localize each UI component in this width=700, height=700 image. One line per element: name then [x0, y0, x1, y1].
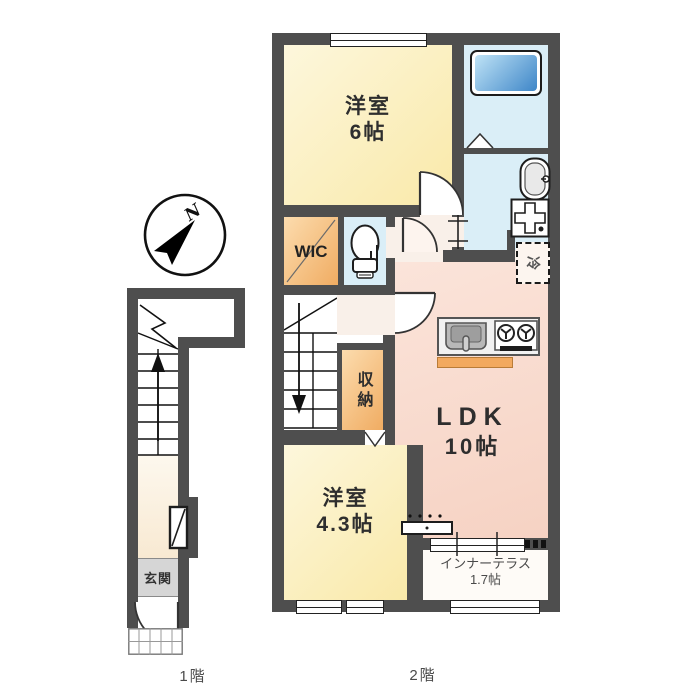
folding-door-icon	[464, 131, 496, 150]
room43-size: 4.3帖	[316, 512, 374, 538]
ldk-size: 10帖	[445, 433, 500, 461]
window-terrace-bottom	[450, 600, 540, 614]
ldk-label: LDK 10帖	[400, 395, 545, 467]
wall-1f-top	[127, 288, 245, 299]
door-arc-room6	[395, 168, 463, 217]
room43-door-notch	[363, 431, 387, 448]
wall-wic-toilet-divider	[338, 217, 344, 285]
wall-1f-column-right	[178, 337, 189, 628]
kitchen-sink-icon	[442, 320, 490, 354]
room43-name: 洋室	[323, 486, 369, 512]
louver-vent-icon	[524, 539, 548, 549]
porch-tiles	[128, 628, 183, 655]
wall-toilet-right-bottom	[386, 258, 395, 295]
room43-label: 洋室 4.3帖	[284, 480, 407, 544]
stairs-down-icon	[284, 295, 337, 430]
door-arc-toilet	[396, 214, 442, 256]
wall-washroom-bottom	[443, 250, 515, 262]
room6-size: 6帖	[350, 120, 387, 146]
stove-icon	[494, 320, 538, 354]
window-room6-top	[330, 33, 427, 47]
floor1-caption: 1階	[153, 665, 233, 686]
wall-room43-top-a	[284, 430, 365, 445]
shoe-cabinet-icon	[168, 505, 189, 550]
closet-text: 収納	[351, 371, 375, 411]
window-room43-bottom-1	[296, 600, 342, 614]
wall-2f-left	[272, 33, 284, 612]
washroom-sliding-door	[444, 211, 472, 251]
entrance-floor: 玄関	[138, 558, 178, 597]
ldk-name: LDK	[436, 402, 508, 433]
closet-label: 収納	[342, 355, 383, 427]
toilet-icon	[349, 223, 383, 281]
washbasin-icon	[519, 157, 551, 201]
kitchen-counter-edge	[437, 357, 513, 368]
wall-toilet-right-top	[386, 217, 395, 227]
refrigerator-box: 冷	[516, 242, 550, 284]
wall-1f-left	[127, 288, 138, 628]
room6-name: 洋室	[345, 94, 391, 120]
wall-terrace-top-left	[423, 538, 430, 550]
wall-ldk-west	[383, 335, 395, 445]
entrance-label: 玄関	[144, 568, 172, 587]
washing-machine-pan-icon	[510, 198, 550, 238]
wall-corridor-stairs	[284, 285, 386, 295]
wall-1f-shoebox-bump	[189, 497, 198, 558]
terrace-label: インナーテラス 1.7帖	[423, 552, 548, 592]
compass-icon: N	[140, 190, 230, 280]
laundry-hanger-icon	[400, 512, 454, 538]
refrigerator-label: 冷	[523, 256, 543, 270]
wall-2f-right	[548, 33, 560, 612]
terrace-size: 1.7帖	[470, 572, 501, 588]
room6-label: 洋室 6帖	[294, 85, 442, 155]
window-room43-bottom-2	[346, 600, 384, 614]
terrace-name: インナーテラス	[440, 556, 531, 572]
floor2-caption: 2階	[383, 664, 463, 685]
wic-label: WIC	[284, 235, 338, 269]
stairs-up-icon	[138, 299, 178, 457]
floor-plan-canvas: 冷	[0, 0, 700, 700]
bathtub-icon	[470, 50, 542, 96]
wall-closet-top	[337, 343, 383, 350]
door-arc-ldk	[393, 291, 437, 335]
wic-text: WIC	[294, 241, 327, 262]
